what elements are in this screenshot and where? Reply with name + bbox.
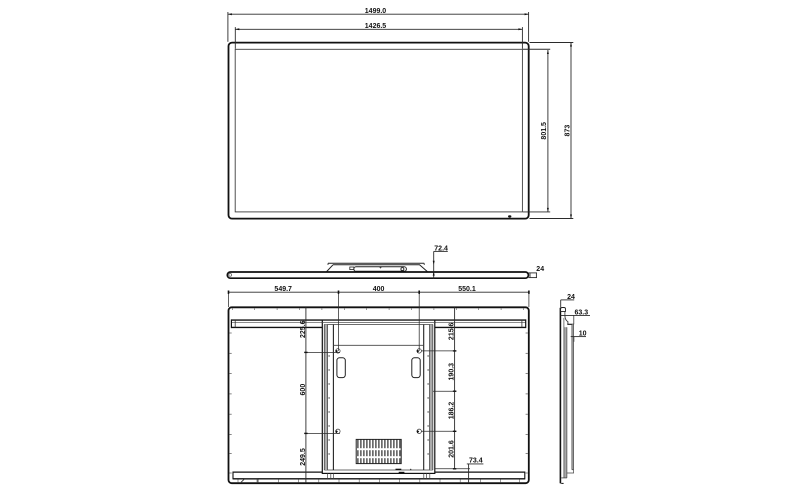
svg-text:549.7: 549.7 — [274, 286, 292, 293]
svg-text:225.6: 225.6 — [300, 320, 307, 338]
svg-text:201.6: 201.6 — [449, 440, 456, 458]
svg-text:249.5: 249.5 — [300, 448, 307, 466]
svg-text:63.3: 63.3 — [574, 310, 588, 317]
svg-text:1426.5: 1426.5 — [365, 23, 387, 30]
svg-text:1499.0: 1499.0 — [365, 8, 387, 15]
svg-text:550.1: 550.1 — [458, 286, 476, 293]
svg-text:24: 24 — [567, 294, 575, 301]
svg-text:72.4: 72.4 — [434, 245, 448, 252]
svg-text:24: 24 — [536, 266, 544, 273]
svg-text:215.6: 215.6 — [449, 322, 456, 340]
svg-text:400: 400 — [373, 286, 385, 293]
svg-text:190.3: 190.3 — [449, 363, 456, 381]
svg-text:10: 10 — [579, 331, 587, 338]
svg-text:73.4: 73.4 — [469, 457, 483, 464]
svg-text:873: 873 — [564, 125, 571, 137]
svg-text:801.5: 801.5 — [541, 122, 548, 140]
svg-text:600: 600 — [300, 384, 307, 396]
svg-text:186.2: 186.2 — [449, 402, 456, 420]
